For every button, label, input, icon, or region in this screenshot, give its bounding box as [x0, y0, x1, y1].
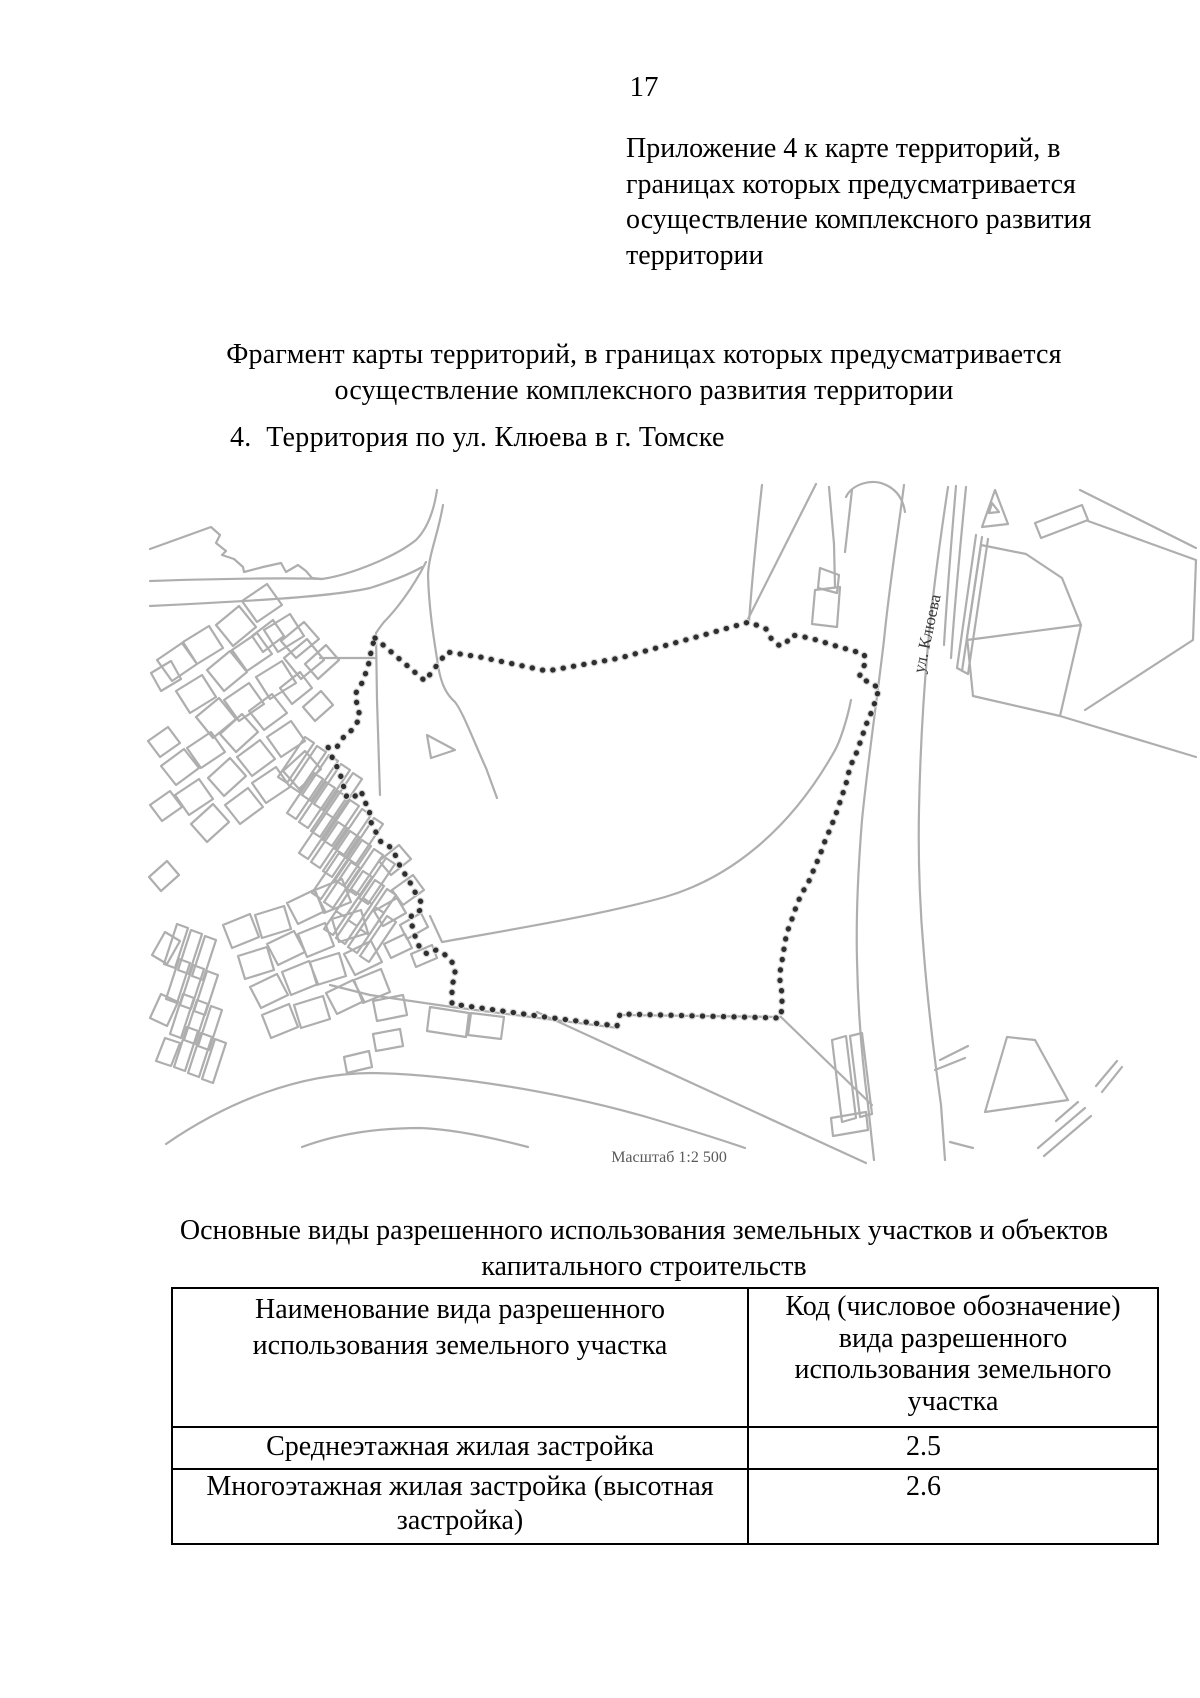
svg-text:Масштаб 1:2 500: Масштаб 1:2 500: [611, 1149, 727, 1166]
svg-text:ул. Клюева: ул. Клюева: [909, 592, 944, 675]
